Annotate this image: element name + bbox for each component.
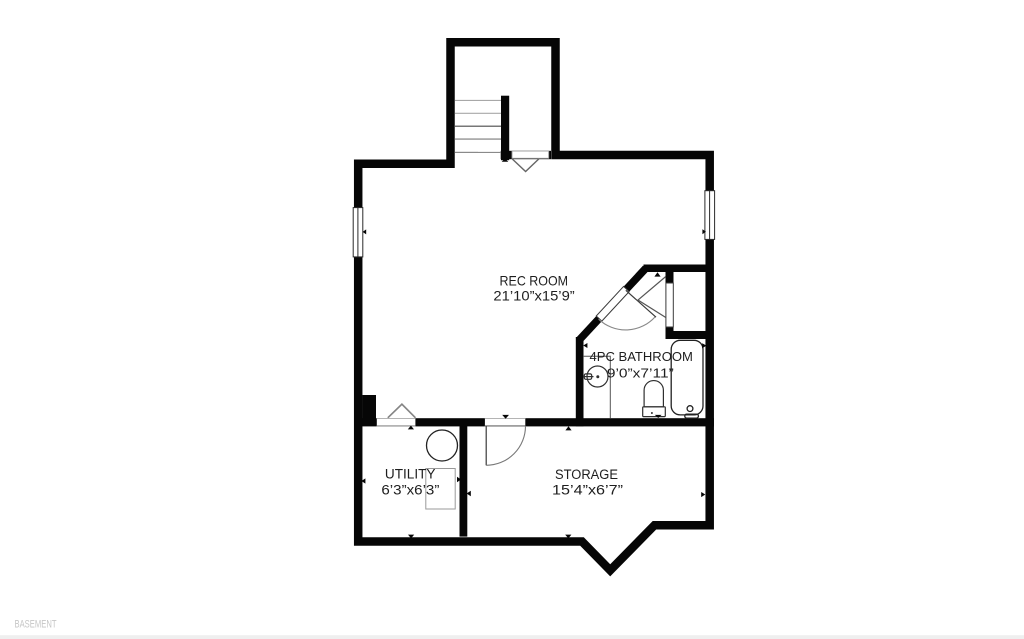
svg-text:BASEMENT: BASEMENT xyxy=(15,618,57,630)
svg-text:6’3”x6’3”: 6’3”x6’3” xyxy=(381,482,439,497)
svg-text:4PC BATHROOM: 4PC BATHROOM xyxy=(590,349,693,364)
svg-text:9’0”x7’11”: 9’0”x7’11” xyxy=(607,365,674,380)
svg-text:UTILITY: UTILITY xyxy=(385,467,436,482)
svg-text:STORAGE: STORAGE xyxy=(555,467,618,482)
svg-text:15’4”x6’7”: 15’4”x6’7” xyxy=(552,483,623,498)
svg-text:REC ROOM: REC ROOM xyxy=(500,272,569,288)
svg-text:21’10”x15’9”: 21’10”x15’9” xyxy=(493,287,575,303)
